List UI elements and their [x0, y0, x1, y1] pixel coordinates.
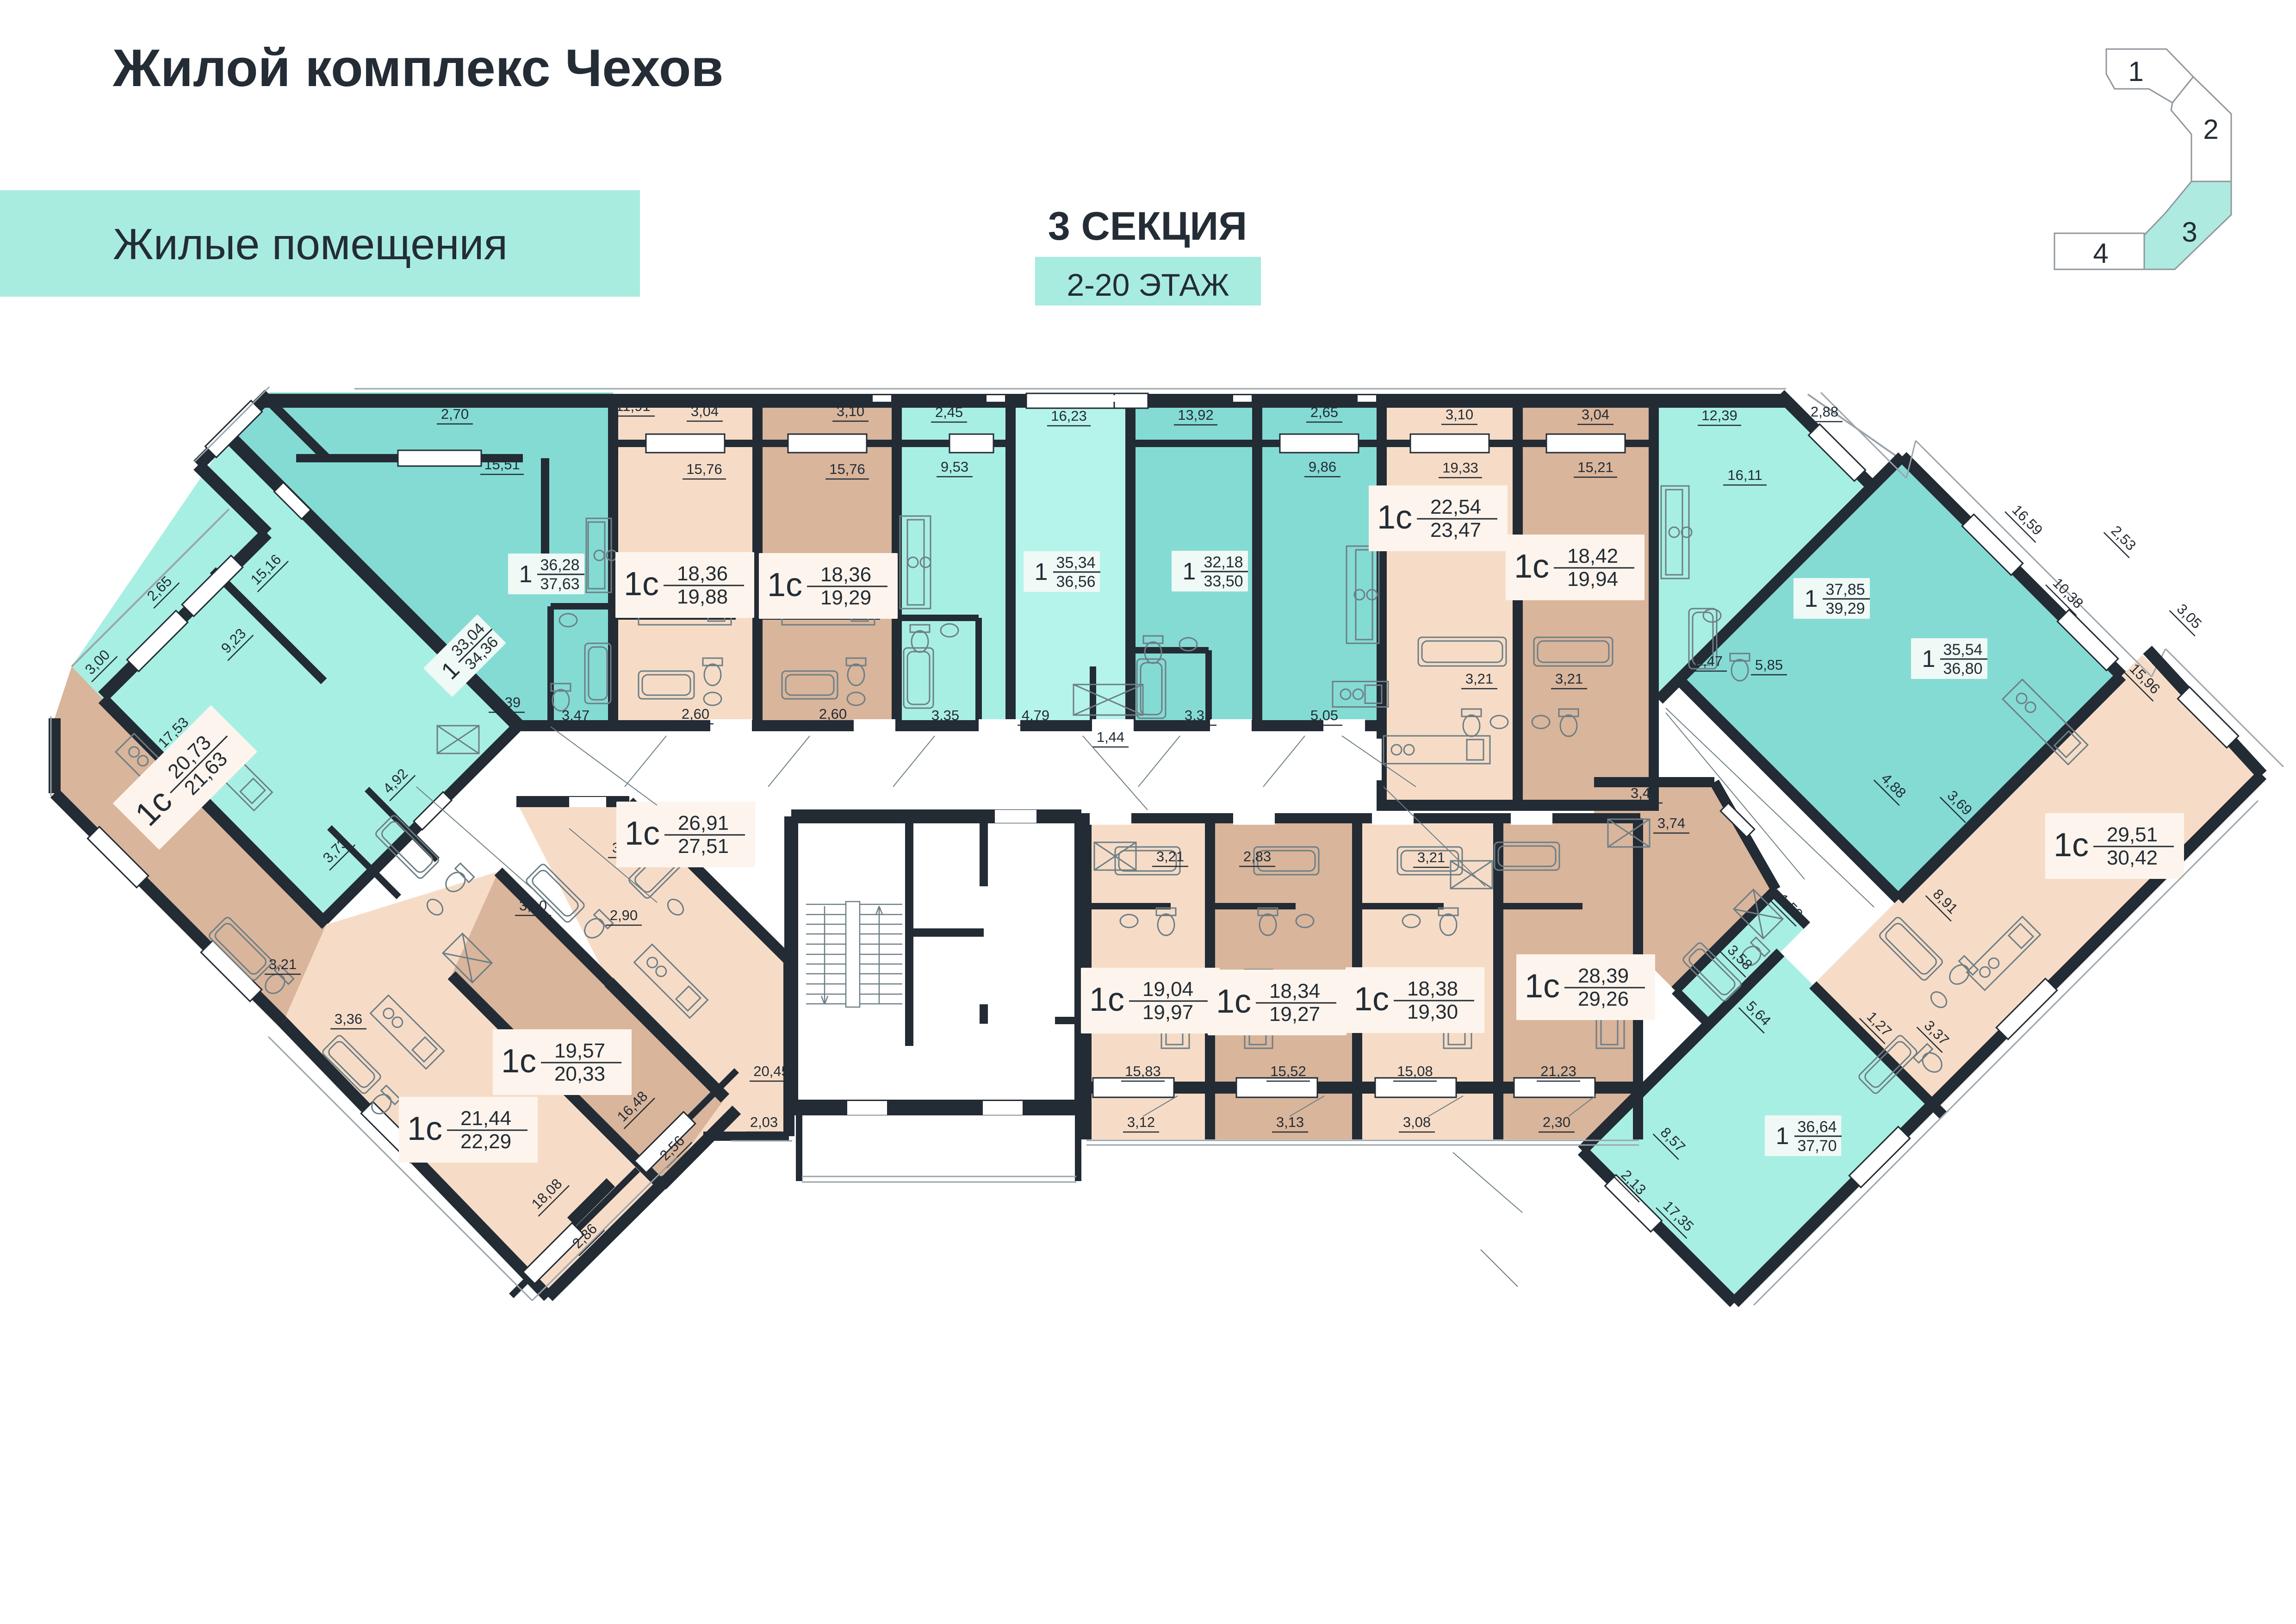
svg-text:3,05: 3,05	[2174, 601, 2205, 632]
svg-text:1: 1	[1776, 1123, 1789, 1150]
svg-text:19,29: 19,29	[820, 586, 871, 609]
svg-text:27,51: 27,51	[678, 835, 729, 858]
svg-text:4: 4	[2093, 238, 2108, 269]
svg-text:36,56: 36,56	[1056, 573, 1095, 591]
svg-text:3,47: 3,47	[562, 707, 590, 723]
svg-text:Жилые помещения: Жилые помещения	[113, 220, 508, 269]
svg-text:2,60: 2,60	[682, 706, 709, 722]
svg-text:3,10: 3,10	[837, 403, 864, 419]
svg-text:29,26: 29,26	[1578, 988, 1629, 1010]
svg-text:3,04: 3,04	[1582, 406, 1609, 423]
svg-text:12,39: 12,39	[1701, 407, 1738, 423]
svg-text:18,34: 18,34	[1269, 980, 1320, 1002]
svg-text:1с: 1с	[1525, 968, 1560, 1005]
svg-text:29,51: 29,51	[2107, 823, 2158, 846]
svg-text:2,03: 2,03	[750, 1114, 778, 1130]
svg-text:21,44: 21,44	[460, 1107, 511, 1130]
svg-text:3,21: 3,21	[1156, 848, 1184, 865]
svg-text:9,53: 9,53	[941, 459, 968, 475]
svg-text:2,65: 2,65	[1310, 404, 1338, 420]
svg-text:19,30: 19,30	[1407, 1001, 1458, 1023]
svg-text:1: 1	[2128, 56, 2143, 87]
svg-text:3,21: 3,21	[269, 956, 297, 972]
svg-text:30,42: 30,42	[2107, 846, 2158, 869]
svg-text:1с: 1с	[1089, 981, 1124, 1018]
svg-text:20,45: 20,45	[753, 1063, 789, 1079]
svg-text:1с: 1с	[1377, 499, 1412, 536]
svg-text:15,76: 15,76	[829, 461, 865, 477]
svg-text:1с: 1с	[501, 1043, 536, 1080]
svg-text:15,52: 15,52	[1270, 1063, 1306, 1079]
svg-text:5,39: 5,39	[493, 694, 521, 710]
svg-text:21,23: 21,23	[1540, 1063, 1576, 1079]
svg-text:2,60: 2,60	[819, 706, 847, 722]
svg-text:3,12: 3,12	[1127, 1114, 1155, 1130]
svg-text:32,18: 32,18	[1204, 554, 1243, 571]
svg-text:1с: 1с	[2054, 827, 2089, 864]
svg-text:26,91: 26,91	[678, 812, 729, 834]
svg-text:1с: 1с	[767, 566, 802, 604]
svg-text:19,94: 19,94	[1567, 568, 1618, 591]
svg-text:15,08: 15,08	[1397, 1063, 1433, 1079]
svg-text:22,54: 22,54	[1430, 496, 1481, 518]
svg-text:2,70: 2,70	[441, 406, 469, 422]
svg-text:3,21: 3,21	[1555, 671, 1583, 687]
svg-text:37,63: 37,63	[540, 575, 579, 593]
svg-text:1с: 1с	[624, 566, 659, 603]
svg-text:3,42: 3,42	[1631, 785, 1658, 801]
svg-text:13,92: 13,92	[1178, 407, 1214, 423]
svg-text:15,83: 15,83	[1125, 1063, 1161, 1079]
svg-text:1с: 1с	[1514, 548, 1549, 585]
svg-text:2: 2	[2203, 114, 2218, 145]
svg-text:Жилой комплекс Чехов: Жилой комплекс Чехов	[112, 39, 724, 98]
svg-text:1: 1	[1035, 559, 1048, 585]
svg-text:3 СЕКЦИЯ: 3 СЕКЦИЯ	[1048, 204, 1247, 249]
svg-text:18,42: 18,42	[1567, 545, 1618, 567]
svg-text:2-20 ЭТАЖ: 2-20 ЭТАЖ	[1067, 268, 1229, 303]
svg-text:15,76: 15,76	[686, 461, 722, 477]
svg-text:22,29: 22,29	[460, 1130, 511, 1153]
svg-text:2,88: 2,88	[1811, 404, 1838, 420]
svg-text:2,90: 2,90	[610, 907, 638, 923]
svg-text:9,86: 9,86	[1309, 459, 1336, 475]
svg-text:39,29: 39,29	[1825, 600, 1865, 617]
svg-text:4,79: 4,79	[1022, 707, 1049, 723]
svg-text:3,74: 3,74	[1657, 815, 1685, 831]
svg-text:19,33: 19,33	[1442, 460, 1478, 476]
svg-text:18,36: 18,36	[677, 562, 728, 585]
svg-text:3,35: 3,35	[1185, 707, 1212, 723]
svg-text:37,85: 37,85	[1825, 581, 1865, 598]
svg-text:2,30: 2,30	[1543, 1114, 1570, 1130]
svg-text:35,54: 35,54	[1943, 641, 1982, 659]
svg-text:3,21: 3,21	[1417, 849, 1445, 865]
svg-text:36,28: 36,28	[540, 556, 579, 574]
svg-text:15,21: 15,21	[1577, 459, 1613, 475]
svg-text:28,39: 28,39	[1578, 964, 1629, 987]
svg-text:1: 1	[1183, 558, 1196, 585]
svg-text:1с: 1с	[407, 1110, 442, 1147]
svg-text:37,70: 37,70	[1797, 1137, 1837, 1155]
svg-text:15,51: 15,51	[484, 456, 520, 473]
svg-text:18,36: 18,36	[820, 563, 871, 586]
svg-text:3: 3	[2182, 217, 2197, 248]
svg-text:19,57: 19,57	[554, 1039, 605, 1062]
svg-text:2,53: 2,53	[2108, 523, 2139, 554]
svg-text:16,23: 16,23	[1051, 408, 1087, 424]
svg-text:19,88: 19,88	[677, 585, 728, 608]
svg-text:23,47: 23,47	[1430, 519, 1481, 541]
svg-text:3,47: 3,47	[1695, 653, 1723, 669]
svg-text:3,04: 3,04	[691, 403, 719, 419]
svg-text:18,38: 18,38	[1407, 977, 1458, 1000]
svg-text:1,44: 1,44	[1097, 729, 1124, 745]
svg-text:19,97: 19,97	[1142, 1001, 1193, 1024]
svg-text:19,04: 19,04	[1142, 978, 1193, 1001]
svg-text:3,10: 3,10	[1446, 406, 1473, 423]
svg-text:3,10: 3,10	[519, 897, 547, 914]
svg-text:1: 1	[519, 561, 533, 588]
svg-text:1: 1	[1922, 646, 1936, 672]
svg-text:19,27: 19,27	[1269, 1003, 1320, 1026]
svg-text:2,45: 2,45	[935, 404, 963, 420]
svg-text:3,08: 3,08	[1403, 1114, 1431, 1130]
svg-text:5,05: 5,05	[1310, 707, 1338, 723]
svg-text:36,80: 36,80	[1943, 660, 1982, 678]
svg-text:36,64: 36,64	[1797, 1118, 1837, 1136]
svg-text:1: 1	[1805, 585, 1818, 612]
svg-text:16,59: 16,59	[2009, 502, 2046, 539]
svg-text:5,85: 5,85	[1755, 657, 1783, 673]
svg-text:1с: 1с	[625, 815, 660, 852]
svg-text:20,33: 20,33	[554, 1063, 605, 1085]
svg-text:33,50: 33,50	[1204, 572, 1243, 590]
svg-text:2,83: 2,83	[1243, 848, 1271, 865]
svg-text:11,91: 11,91	[615, 398, 650, 414]
svg-text:3,21: 3,21	[1465, 671, 1493, 687]
svg-text:3,36: 3,36	[335, 1011, 362, 1027]
svg-text:16,11: 16,11	[1727, 467, 1762, 483]
svg-text:3,35: 3,35	[931, 707, 959, 723]
svg-text:35,34: 35,34	[1056, 554, 1095, 572]
svg-text:1с: 1с	[1216, 983, 1251, 1020]
svg-text:1с: 1с	[1354, 981, 1389, 1018]
